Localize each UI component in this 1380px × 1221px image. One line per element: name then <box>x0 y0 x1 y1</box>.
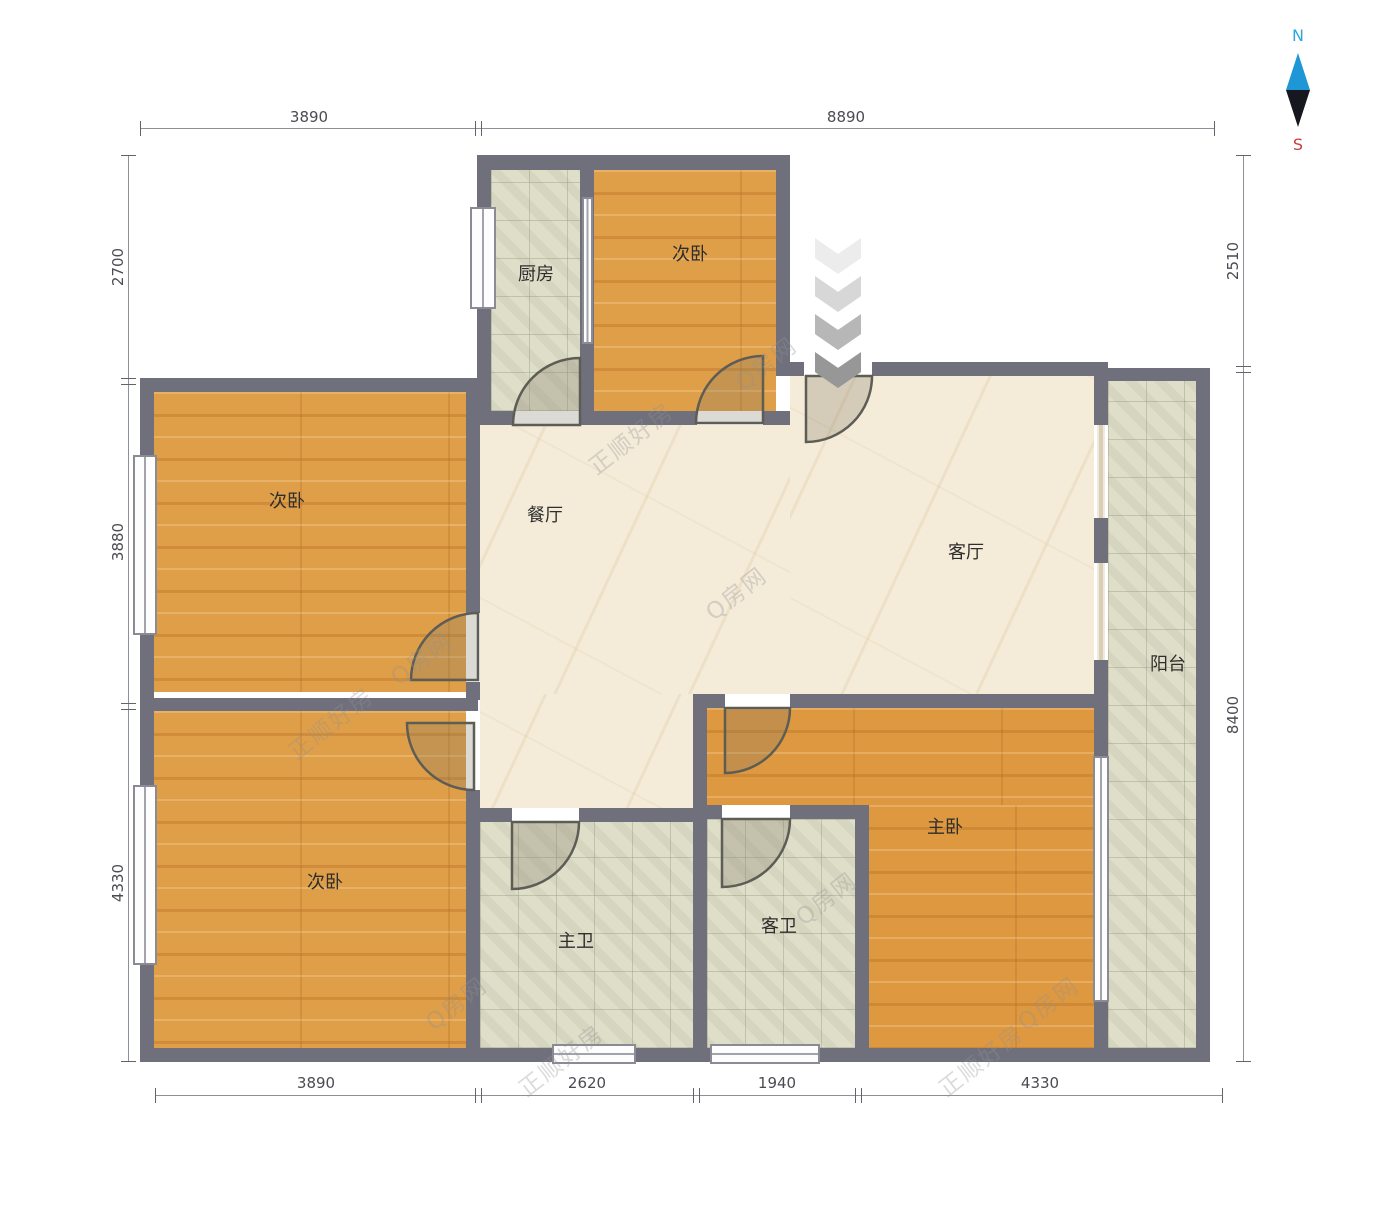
dim-tick <box>121 709 136 710</box>
guest-bath-label: 客卫 <box>761 912 797 938</box>
dining-label: 餐厅 <box>527 501 563 527</box>
dim-tick <box>475 1088 476 1103</box>
bedroom-top-label: 次卧 <box>672 240 708 266</box>
wall-segment <box>872 362 1108 376</box>
balcony-slider-glass <box>1097 563 1105 660</box>
compass-south-label: S <box>1276 135 1320 154</box>
dim-tick <box>693 1088 694 1103</box>
entry-arrow-icon <box>815 314 861 350</box>
bedroom-left-upper-label: 次卧 <box>269 487 305 513</box>
wall-segment <box>140 378 480 392</box>
bedroom-top-floor <box>594 170 776 411</box>
master-bath-label: 主卫 <box>558 927 594 953</box>
dim-label-left-2: 3880 <box>109 523 127 561</box>
compass: N S <box>1276 26 1320 154</box>
wall-segment <box>1094 518 1108 563</box>
dim-tick <box>1236 1061 1251 1062</box>
dim-label-top-2: 8890 <box>827 108 865 126</box>
compass-needle-north-icon <box>1286 53 1310 90</box>
wall-segment <box>579 808 707 822</box>
window <box>133 785 157 965</box>
window <box>133 455 157 635</box>
floorplan-canvas: 厨房 次卧 次卧 餐厅 客厅 阳台 次卧 主卫 客卫 主卧 3890 8890 … <box>0 0 1380 1221</box>
entry-arrow-icon <box>815 238 861 274</box>
entry-arrow-icon <box>815 276 861 312</box>
dim-tick <box>121 703 136 704</box>
dim-label-right-2: 8400 <box>1224 696 1242 734</box>
wall-segment <box>466 790 480 1048</box>
balcony-slider-glass <box>1097 425 1105 518</box>
wall-segment <box>776 155 790 376</box>
master-bedroom-strip-floor <box>707 708 1094 805</box>
compass-needle-south-icon <box>1286 90 1310 127</box>
master-bedroom-label: 主卧 <box>927 813 963 839</box>
window <box>710 1044 820 1064</box>
window <box>470 207 496 309</box>
dim-tick <box>1214 121 1215 136</box>
dim-label-right-1: 2510 <box>1224 242 1242 280</box>
wall-segment <box>580 411 697 425</box>
wall-segment <box>776 362 804 376</box>
wall-segment <box>763 411 790 425</box>
dim-label-bottom-1: 3890 <box>297 1074 335 1092</box>
wall-segment <box>1094 368 1210 381</box>
dim-label-bottom-2: 2620 <box>568 1074 606 1092</box>
wall-segment <box>693 694 725 708</box>
window <box>582 197 593 344</box>
dim-tick <box>121 155 136 156</box>
dim-tick <box>861 1088 862 1103</box>
wall-segment <box>477 170 491 212</box>
dim-label-left-3: 4330 <box>109 864 127 902</box>
wall-segment <box>466 808 512 822</box>
kitchen-label: 厨房 <box>518 260 554 286</box>
dim-line-top <box>140 128 1215 129</box>
dim-line-bottom <box>155 1095 1223 1096</box>
compass-north-label: N <box>1276 26 1320 45</box>
wall-segment <box>140 698 478 711</box>
dim-tick <box>1236 155 1251 156</box>
balcony-label: 阳台 <box>1150 650 1186 676</box>
window <box>552 1044 636 1064</box>
wall-segment <box>1094 376 1108 425</box>
living-label: 客厅 <box>948 538 984 564</box>
dim-tick <box>855 1088 856 1103</box>
dim-tick <box>155 1088 156 1103</box>
balcony-floor <box>1108 381 1196 1048</box>
kitchen-floor <box>491 170 580 411</box>
wall-segment <box>477 155 790 170</box>
dim-tick <box>1222 1088 1223 1103</box>
dim-tick <box>481 121 482 136</box>
wall-segment <box>1196 381 1210 1062</box>
window <box>1093 756 1109 1002</box>
master-bedroom-floor <box>869 805 1094 1048</box>
dim-tick <box>121 1061 136 1062</box>
dim-tick <box>121 378 136 379</box>
wall-segment <box>1094 660 1108 758</box>
wall-segment <box>707 805 722 819</box>
dim-line-left <box>128 155 129 1062</box>
wall-segment <box>693 694 707 1048</box>
wall-segment <box>1094 1000 1108 1048</box>
dim-label-left-1: 2700 <box>109 248 127 286</box>
dim-tick <box>699 1088 700 1103</box>
wall-segment <box>855 805 869 1048</box>
dim-line-right <box>1243 155 1244 1062</box>
dining-floor <box>480 425 790 694</box>
dim-label-bottom-3: 1940 <box>758 1074 796 1092</box>
dim-label-top-1: 3890 <box>290 108 328 126</box>
bedroom-left-lower-label: 次卧 <box>307 868 343 894</box>
bedroom-left-upper-floor <box>154 392 466 692</box>
dim-tick <box>475 121 476 136</box>
dim-tick <box>121 384 136 385</box>
dim-tick <box>1236 372 1251 373</box>
dim-tick <box>140 121 141 136</box>
wall-segment <box>140 1048 1210 1062</box>
dim-label-bottom-4: 4330 <box>1021 1074 1059 1092</box>
hall-floor <box>480 694 693 808</box>
wall-segment <box>466 392 480 613</box>
dim-tick <box>481 1088 482 1103</box>
wall-segment <box>790 694 1108 708</box>
wall-segment <box>477 411 513 425</box>
dim-tick <box>1236 366 1251 367</box>
living-floor <box>790 376 1094 694</box>
